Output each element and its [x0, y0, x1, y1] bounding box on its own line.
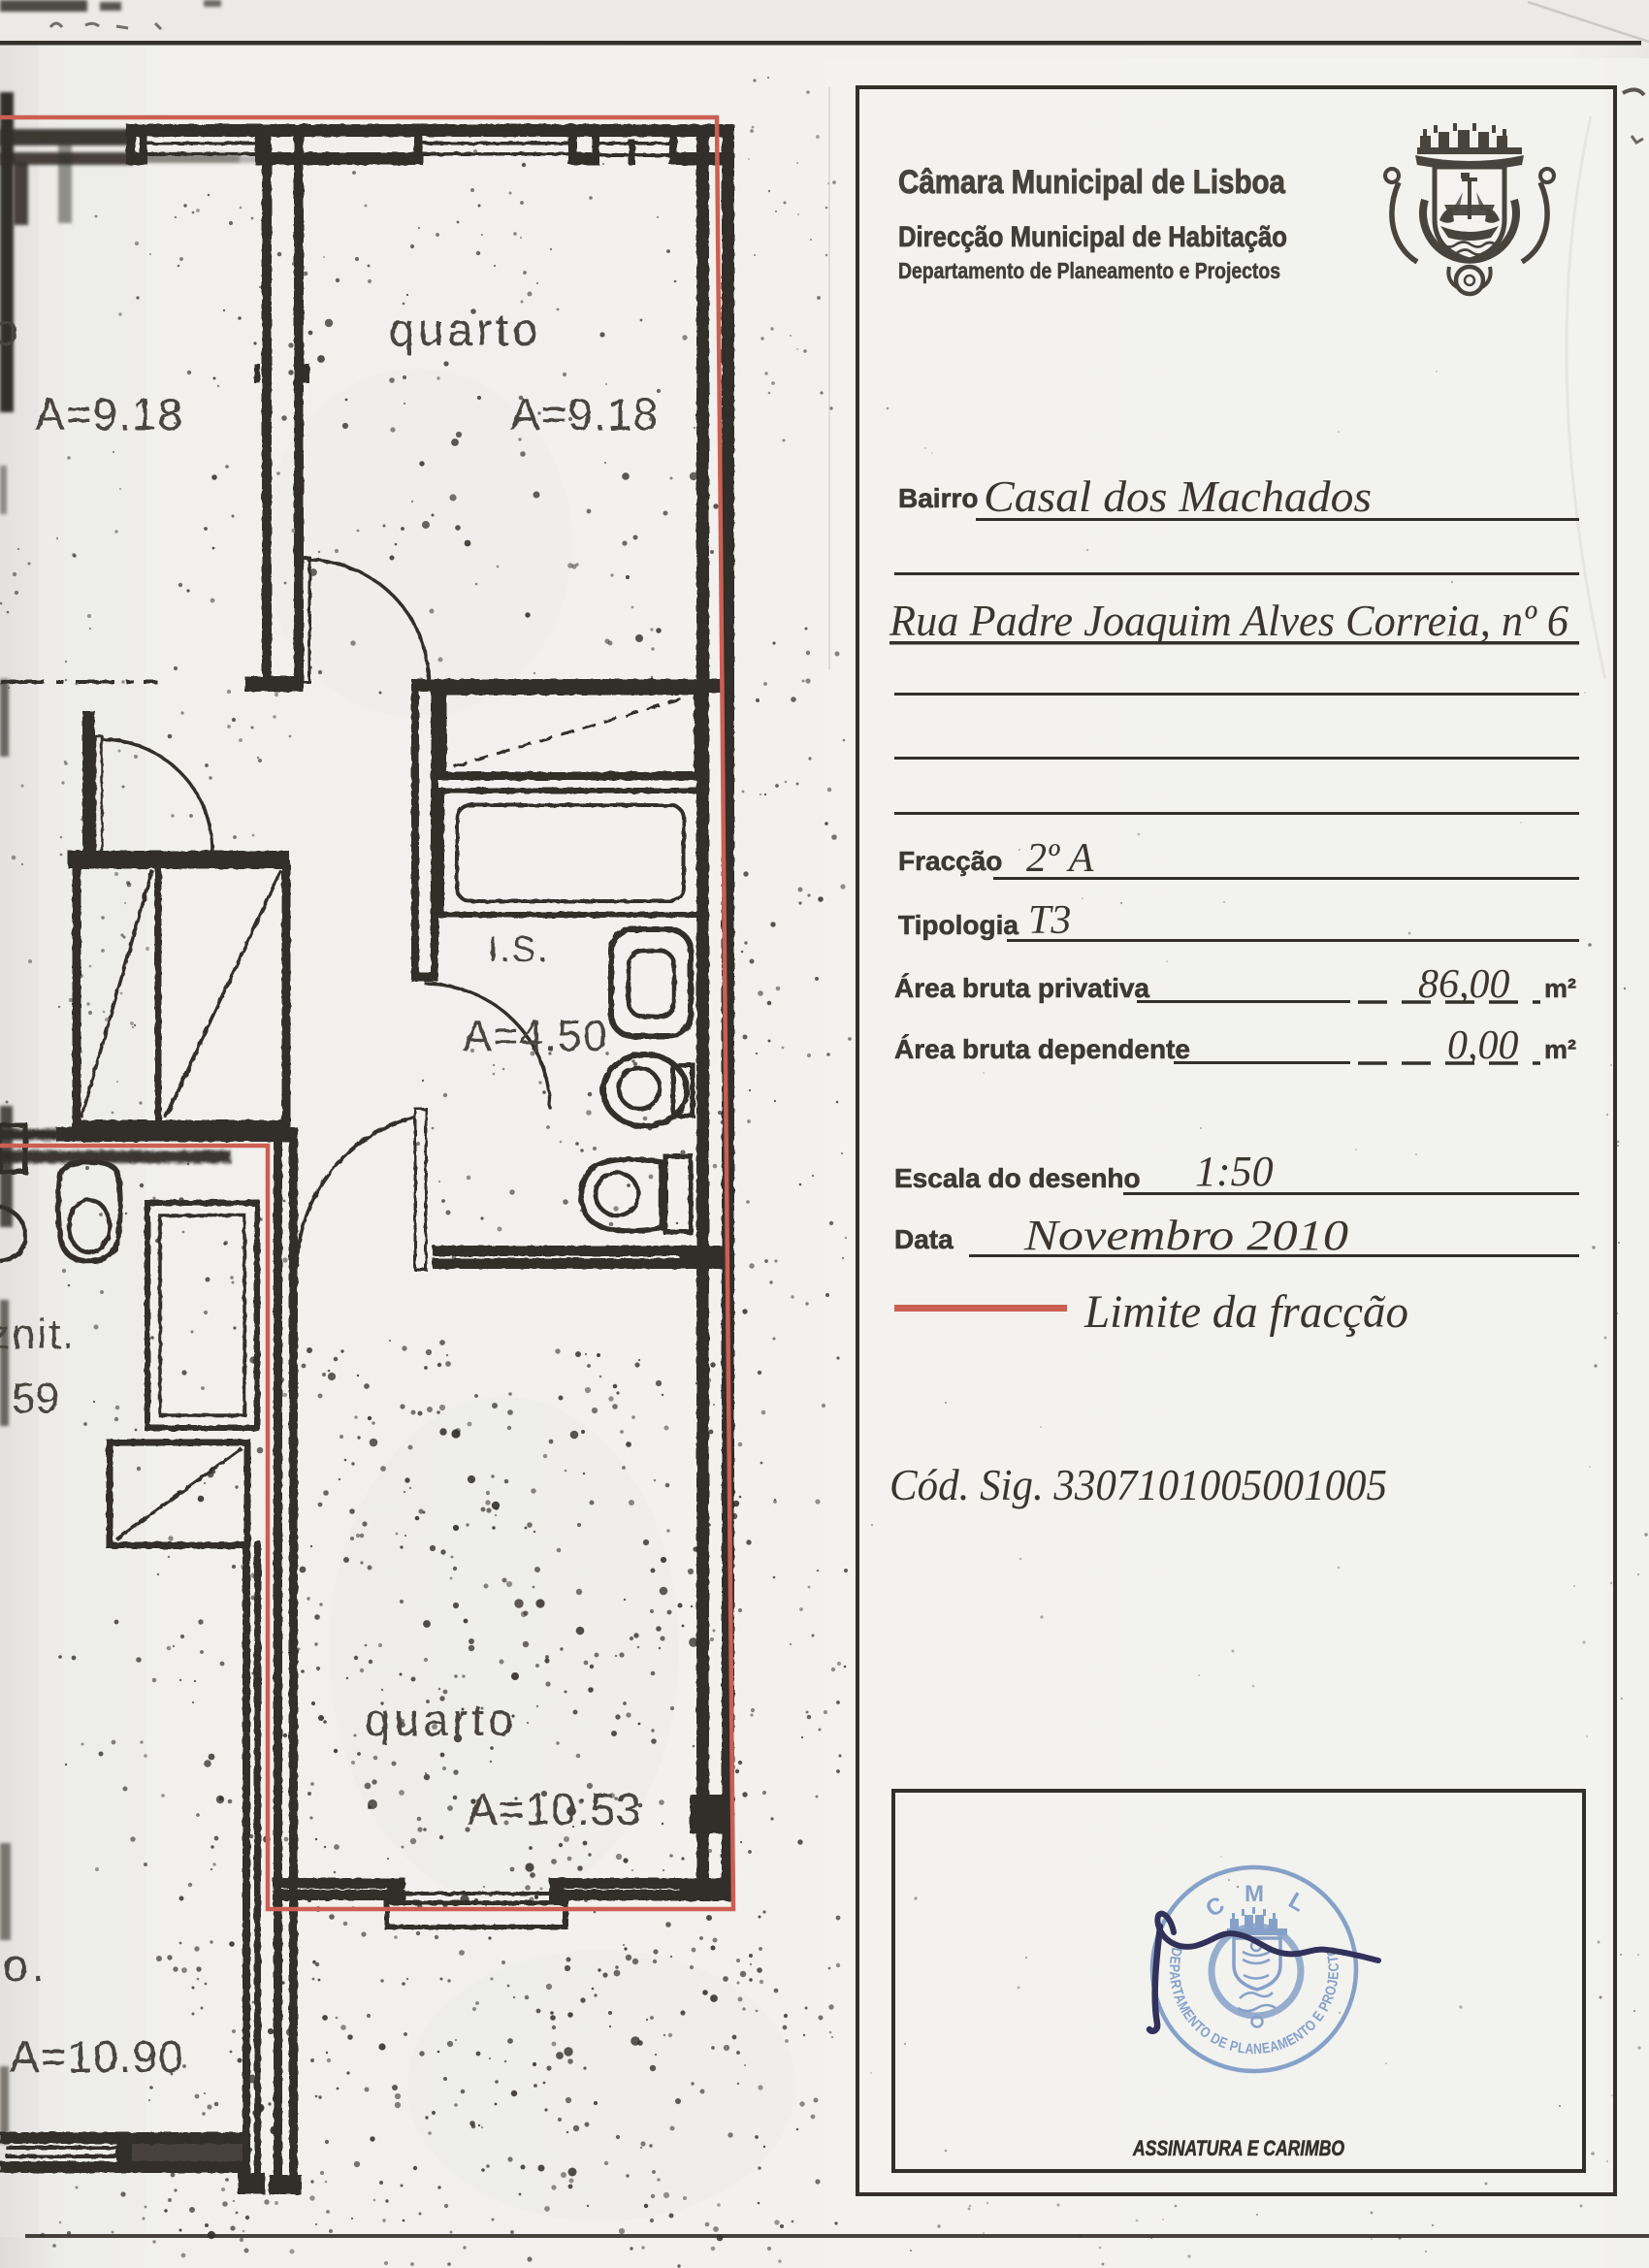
svg-text:Departamento de Planeamento e: Departamento de Planeamento e Projectos	[898, 258, 1280, 283]
svg-text:Rua Padre Joaquim Alves Correi: Rua Padre Joaquim Alves Correia, nº 6	[889, 596, 1568, 645]
svg-text:rto.: rto.	[0, 1939, 48, 1991]
svg-text:Escala do desenho: Escala do desenho	[894, 1163, 1141, 1193]
svg-text:quarto: quarto	[365, 1694, 517, 1745]
svg-text:Casal dos Machados: Casal dos Machados	[984, 471, 1372, 521]
svg-text:Área bruta privativa: Área bruta privativa	[894, 973, 1149, 1003]
svg-text:Fracção: Fracção	[898, 846, 1002, 876]
svg-text:Data: Data	[894, 1224, 954, 1254]
svg-text:Direcção Municipal de Habitaçã: Direcção Municipal de Habitação	[898, 221, 1287, 253]
svg-text:Câmara Municipal de Lisboa: Câmara Municipal de Lisboa	[898, 164, 1286, 201]
svg-text:M: M	[1245, 1881, 1264, 1907]
svg-text:Limite da fracção: Limite da fracção	[1083, 1286, 1408, 1338]
svg-text:Tipologia: Tipologia	[898, 910, 1018, 940]
svg-text:86,00: 86,00	[1418, 962, 1510, 1007]
svg-text:znit.: znit.	[0, 1311, 77, 1358]
svg-text:m²: m²	[1544, 974, 1576, 1003]
svg-text:I.S.: I.S.	[488, 929, 550, 969]
svg-text:Novembro 2010: Novembro 2010	[1023, 1212, 1348, 1259]
svg-text:A=9.18: A=9.18	[510, 389, 659, 439]
svg-text:m²: m²	[1544, 1035, 1576, 1064]
svg-text:quarto: quarto	[389, 304, 541, 355]
svg-text:2º A: 2º A	[1026, 836, 1094, 881]
svg-text:Cód. Sig. 3307101005001005: Cód. Sig. 3307101005001005	[889, 1461, 1387, 1509]
svg-text:ASSINATURA E CARIMBO: ASSINATURA E CARIMBO	[1132, 2136, 1344, 2160]
svg-text:rto: rto	[0, 304, 22, 355]
svg-text:A=9.18: A=9.18	[35, 389, 183, 439]
svg-text:1:50: 1:50	[1195, 1148, 1274, 1195]
svg-text:Área bruta dependente: Área bruta dependente	[894, 1034, 1190, 1064]
svg-text:Bairro: Bairro	[898, 483, 978, 513]
svg-text:A=10.90: A=10.90	[10, 2031, 184, 2082]
svg-text:A=4.50: A=4.50	[463, 1011, 608, 1060]
svg-text:T3: T3	[1028, 898, 1071, 943]
svg-text:A=10.53: A=10.53	[468, 1784, 642, 1834]
svg-text:59: 59	[12, 1375, 59, 1422]
svg-text:0,00: 0,00	[1447, 1023, 1519, 1068]
